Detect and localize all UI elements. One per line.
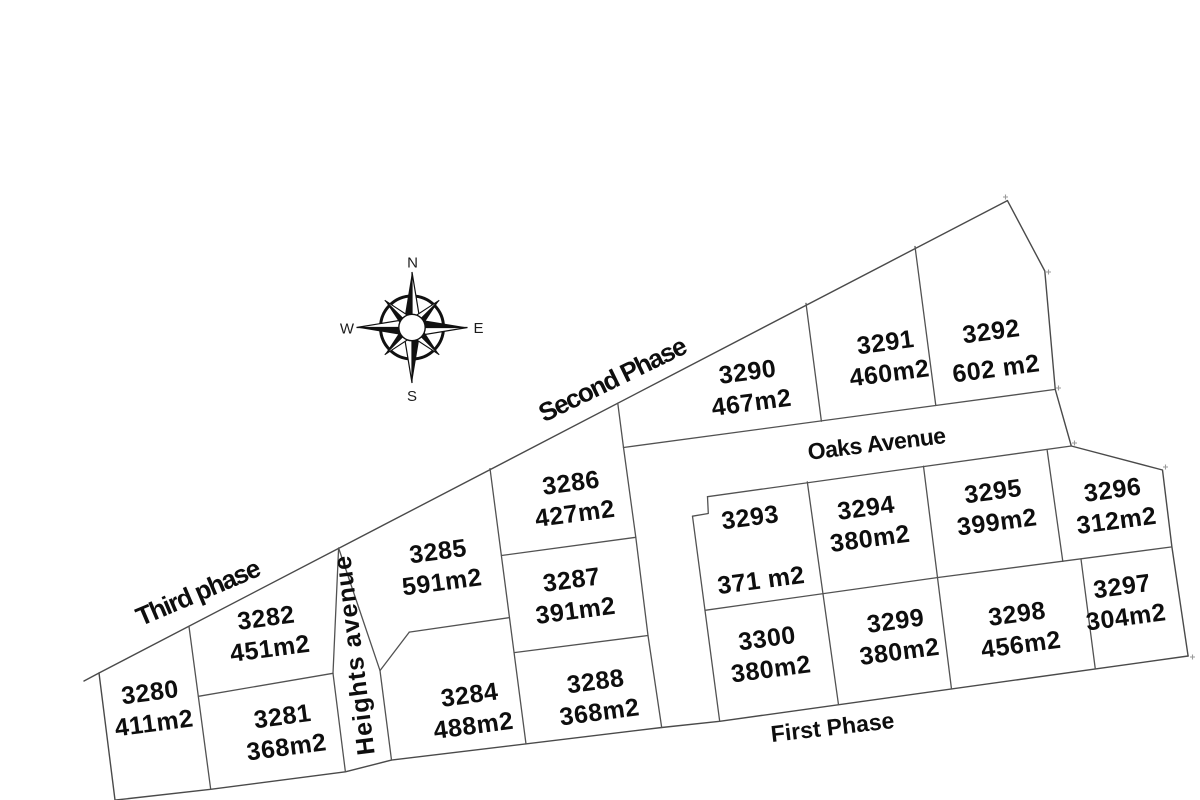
svg-text:E: E: [473, 320, 483, 337]
svg-text:S: S: [407, 388, 417, 405]
svg-text:W: W: [340, 321, 355, 338]
svg-text:N: N: [407, 255, 418, 272]
